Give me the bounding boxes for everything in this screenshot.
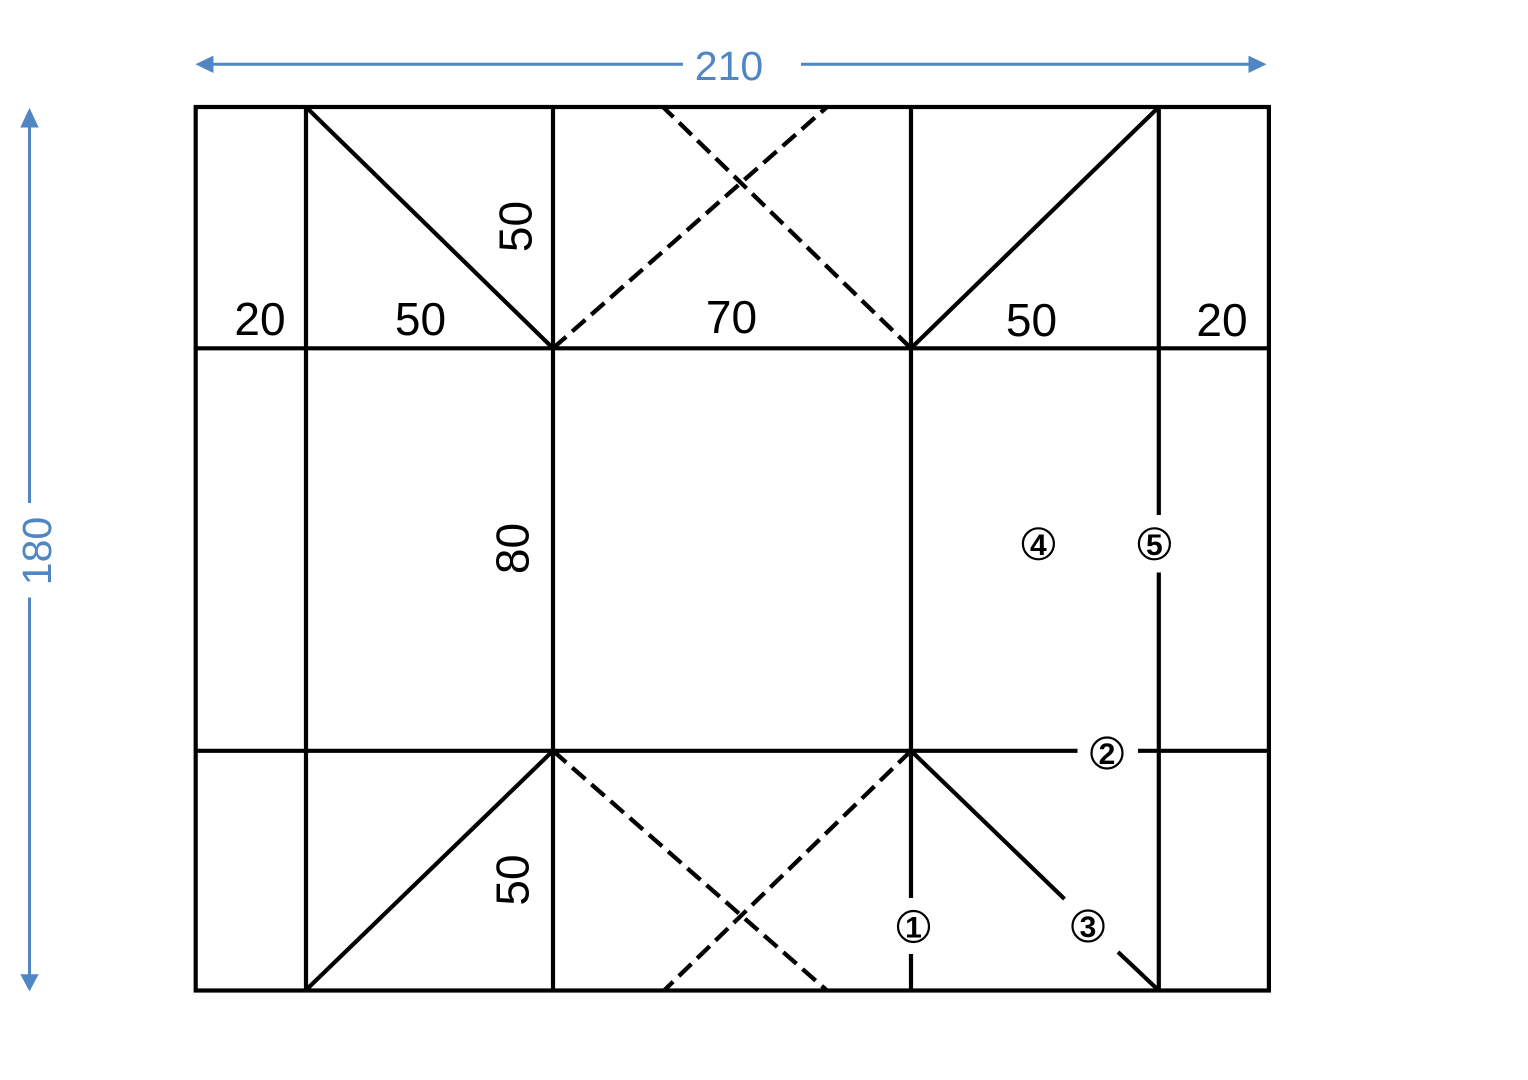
svg-text:4: 4 (1030, 529, 1047, 562)
svg-text:80: 80 (487, 523, 539, 574)
svg-text:5: 5 (1146, 529, 1163, 562)
svg-text:50: 50 (490, 201, 542, 252)
svg-text:50: 50 (395, 293, 446, 345)
svg-text:50: 50 (1006, 294, 1057, 346)
svg-text:70: 70 (706, 291, 757, 343)
svg-text:2: 2 (1099, 738, 1116, 771)
svg-text:1: 1 (905, 912, 922, 945)
svg-text:180: 180 (14, 517, 60, 585)
svg-text:20: 20 (234, 293, 285, 345)
svg-text:50: 50 (487, 854, 539, 905)
svg-text:20: 20 (1196, 294, 1247, 346)
svg-text:3: 3 (1080, 911, 1097, 944)
svg-text:210: 210 (695, 43, 763, 89)
